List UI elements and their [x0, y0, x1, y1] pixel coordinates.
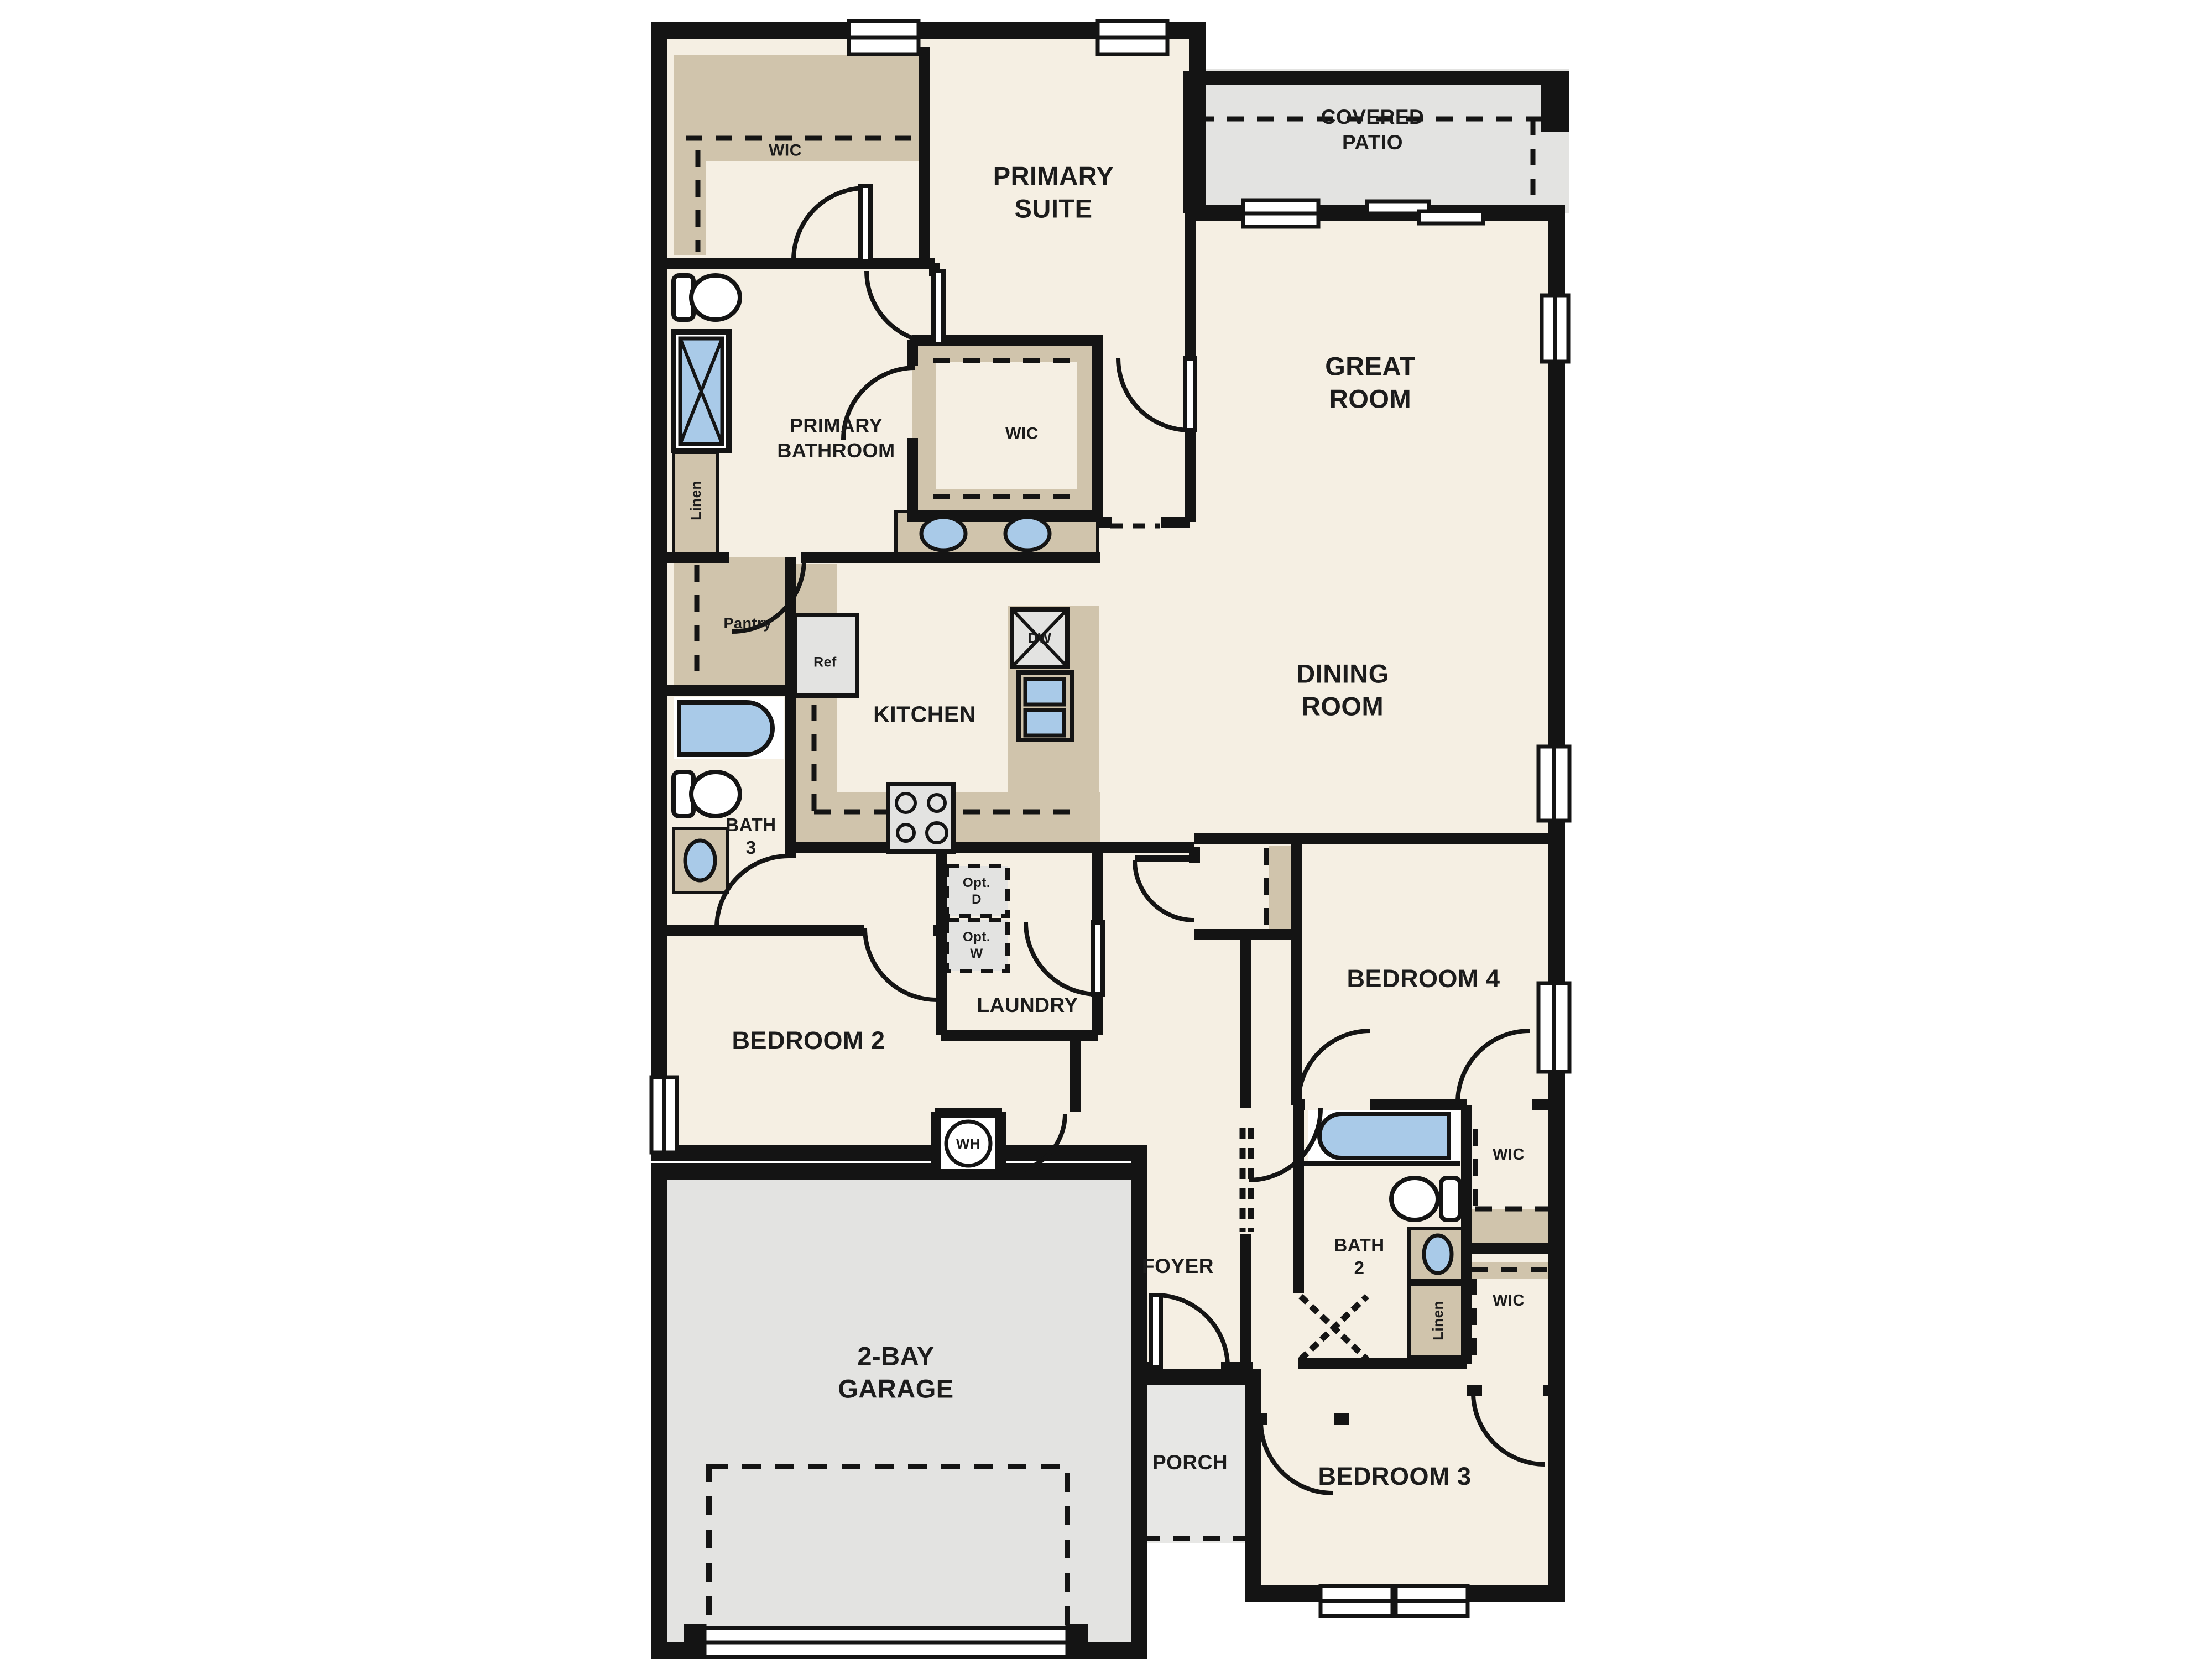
patio-corner-post: [1541, 71, 1569, 132]
label-dining-room: DINING ROOM: [1296, 658, 1389, 723]
label-opt-w: Opt. W: [963, 929, 990, 962]
label-wic-bed3: WIC: [1493, 1291, 1525, 1311]
window-top-1: [849, 21, 919, 54]
window-greatroom-right: [1542, 295, 1568, 362]
window-bedroom4: [1538, 983, 1569, 1072]
label-bath-2: BATH 2: [1334, 1234, 1384, 1280]
vanity-sink: [921, 517, 966, 550]
toilet-bowl: [1391, 1178, 1438, 1220]
wic-bed4-shelf: [1467, 1209, 1557, 1244]
label-dw: DW: [1028, 630, 1052, 647]
toilet-tank: [1441, 1178, 1460, 1220]
label-primary-bathroom: PRIMARY BATHROOM: [777, 413, 895, 463]
bath2-tub: [1319, 1114, 1449, 1158]
label-primary-suite: PRIMARY SUITE: [993, 160, 1114, 225]
label-pantry: Pantry: [723, 614, 771, 633]
label-opt-d: Opt. D: [963, 875, 990, 908]
label-ref: Ref: [813, 654, 837, 671]
label-linen-2: Linen: [1429, 1301, 1447, 1340]
hall-closet-shelf: [1269, 846, 1292, 935]
vanity-sink: [1005, 517, 1050, 550]
label-wic-primary-2: WIC: [1005, 423, 1039, 444]
label-foyer: FOYER: [1142, 1254, 1214, 1279]
label-kitchen: KITCHEN: [873, 700, 976, 728]
window-greatroom-patio: [1243, 200, 1318, 227]
label-bedroom-3: BEDROOM 3: [1318, 1461, 1471, 1492]
label-laundry: LAUNDRY: [977, 993, 1078, 1018]
label-wic-bed4: WIC: [1493, 1145, 1525, 1165]
label-wh: WH: [956, 1135, 980, 1153]
suite-bath-door-leaf: [933, 271, 943, 344]
suite-door-leaf: [1185, 358, 1195, 430]
bath2-sink: [1424, 1235, 1452, 1273]
label-bath-3: BATH 3: [726, 813, 776, 859]
window-bedroom3-1: [1321, 1586, 1392, 1616]
garage-door: [686, 1626, 1086, 1659]
toilet-bowl: [691, 275, 740, 320]
label-bedroom-4: BEDROOM 4: [1347, 963, 1500, 994]
window-bedroom3-2: [1396, 1586, 1468, 1616]
wic1-door-leaf: [860, 186, 870, 261]
kitchen-sink-bowl-2: [1025, 710, 1064, 735]
bath3-sink: [685, 841, 715, 880]
window-top-2: [1098, 21, 1167, 54]
window-bedroom2: [651, 1077, 677, 1152]
label-wic-primary: WIC: [769, 140, 802, 161]
toilet-bowl: [691, 772, 740, 816]
floorplan-drawing: [0, 0, 2212, 1659]
label-porch: PORCH: [1152, 1450, 1228, 1475]
label-linen-primary: Linen: [687, 481, 705, 520]
floorplan-page: WIC PRIMARY SUITE COVERED PATIO GREAT RO…: [0, 0, 2212, 1659]
label-covered-patio: COVERED PATIO: [1321, 105, 1424, 156]
window-dining-right: [1538, 747, 1569, 821]
laundry-door-leaf: [1093, 922, 1103, 994]
bath3-tub: [679, 702, 773, 754]
label-bedroom-2: BEDROOM 2: [732, 1025, 885, 1056]
front-door-leaf: [1151, 1295, 1161, 1367]
label-great-room: GREAT ROOM: [1325, 350, 1416, 415]
kitchen-sink-bowl-1: [1025, 679, 1064, 705]
label-garage: 2-BAY GARAGE: [838, 1340, 953, 1405]
